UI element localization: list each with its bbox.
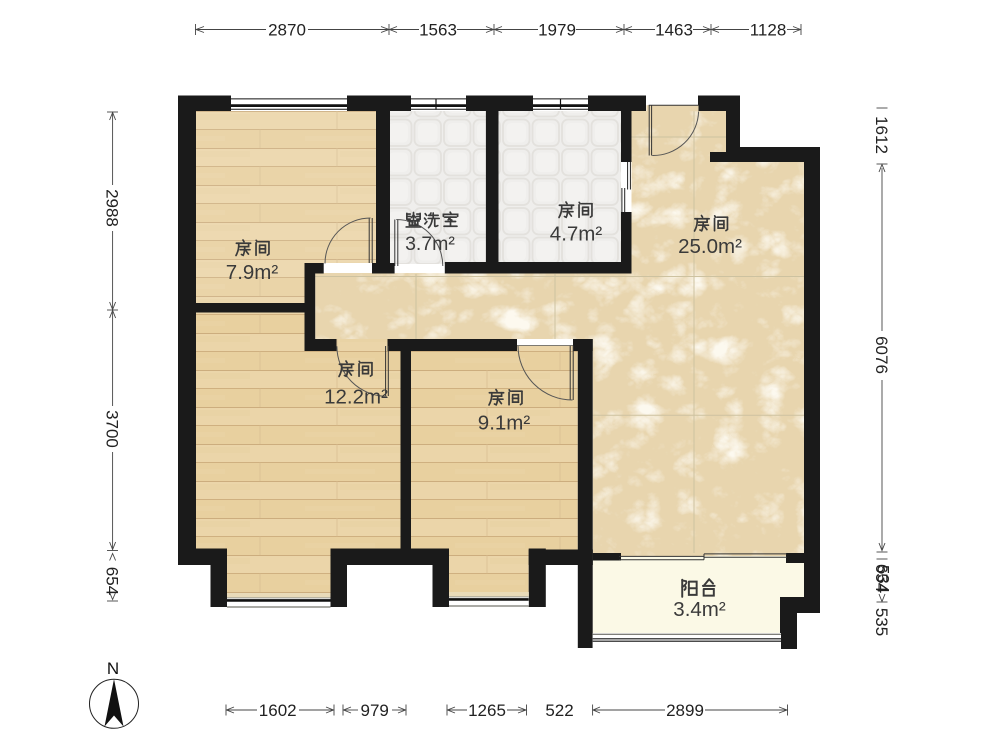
svg-text:1128: 1128 (750, 21, 787, 40)
svg-text:1463: 1463 (655, 21, 693, 40)
svg-text:3.4m²: 3.4m² (673, 598, 726, 621)
svg-text:1602: 1602 (259, 701, 297, 720)
svg-text:2988: 2988 (103, 189, 122, 227)
svg-text:1265: 1265 (468, 701, 506, 720)
svg-text:979: 979 (361, 701, 389, 720)
svg-text:3.7m²: 3.7m² (405, 233, 455, 255)
svg-text:4.7m²: 4.7m² (550, 223, 603, 246)
svg-text:2870: 2870 (268, 21, 306, 40)
svg-text:12.2m²: 12.2m² (324, 386, 388, 409)
svg-text:9.1m²: 9.1m² (478, 412, 531, 435)
svg-text:1979: 1979 (538, 21, 576, 40)
svg-text:535: 535 (872, 608, 891, 636)
svg-text:7.9m²: 7.9m² (226, 261, 279, 284)
svg-text:534: 534 (874, 565, 893, 593)
svg-text:6076: 6076 (872, 336, 891, 374)
svg-text:1563: 1563 (419, 21, 457, 40)
svg-text:522: 522 (545, 701, 573, 720)
svg-text:3700: 3700 (103, 410, 122, 448)
svg-text:2899: 2899 (666, 701, 704, 720)
svg-text:N: N (107, 659, 119, 678)
svg-text:1612: 1612 (872, 116, 891, 154)
svg-text:654: 654 (103, 567, 122, 595)
svg-text:25.0m²: 25.0m² (678, 235, 742, 258)
